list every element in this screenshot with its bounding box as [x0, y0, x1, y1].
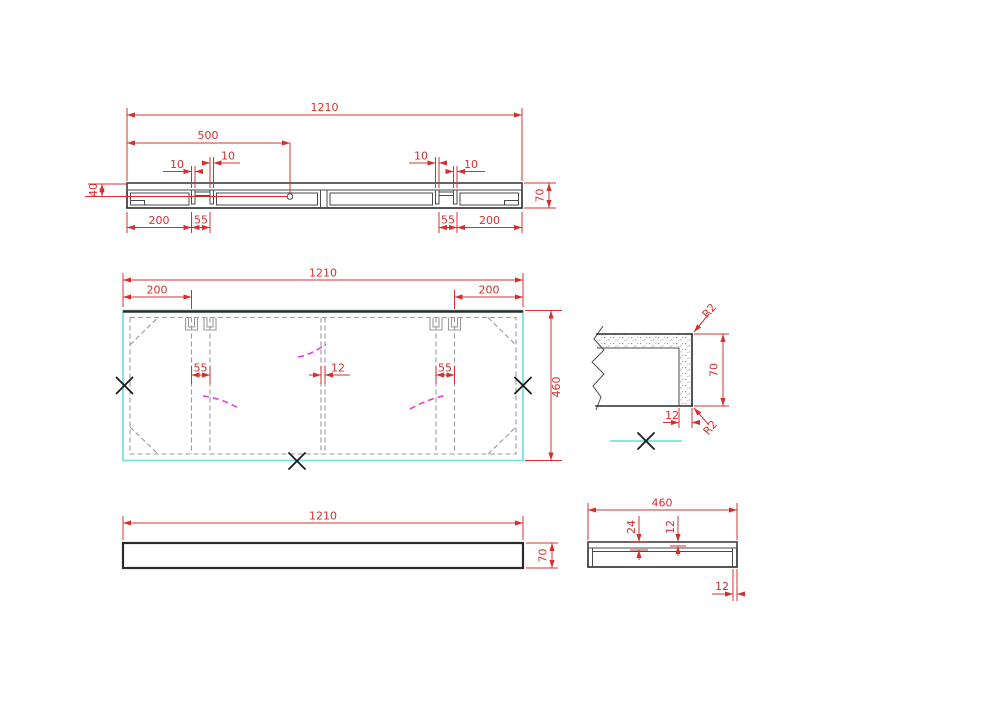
grain-arc — [203, 396, 240, 409]
dim-text: 10 — [170, 158, 184, 171]
dim-text: 55 — [194, 362, 208, 375]
grain-arc — [298, 344, 326, 357]
dim-front-height: 70 — [526, 543, 558, 568]
cavity-right — [460, 193, 519, 205]
dim-text: 460 — [550, 377, 563, 398]
slot-d — [454, 190, 458, 204]
dim-text: 40 — [87, 183, 100, 197]
dim-text: 1210 — [309, 267, 337, 280]
dim-section-hole-offset: 500 — [127, 129, 290, 194]
dim-text: 12 — [715, 580, 729, 593]
dim-plan-rib-left: 55 — [192, 362, 211, 385]
dim-side-skin: 12 — [664, 516, 686, 556]
dim-text: 200 — [479, 284, 500, 297]
cavity-left — [131, 193, 190, 205]
cavity-mid-left — [217, 193, 318, 205]
grain-arc — [410, 395, 447, 409]
dim-text: 55 — [194, 214, 208, 227]
side-skin-band — [588, 542, 737, 548]
dim-text: 10 — [221, 150, 235, 163]
plan-view: 1210 200 200 55 12 55 — [117, 267, 564, 470]
dim-text: 200 — [147, 284, 168, 297]
top-skin-band — [127, 183, 522, 190]
dim-text: 12 — [664, 520, 677, 534]
dim-text: 24 — [625, 520, 638, 534]
front-view: 1210 70 — [123, 510, 558, 569]
dim-text: 12 — [331, 362, 345, 375]
side-view: 460 24 12 12 — [588, 497, 745, 602]
corner-diagonal — [488, 318, 516, 346]
cad-canvas: 1210 500 10 10 10 — [0, 0, 1000, 707]
dim-side-recess: 24 — [625, 516, 648, 560]
dim-text: 55 — [438, 362, 452, 375]
corner-diagonal — [130, 427, 158, 454]
detail-view: R2 R2 70 12 — [592, 301, 729, 449]
dim-side-edge: 12 — [712, 569, 745, 601]
dim-text: 500 — [198, 129, 219, 142]
dim-text: 1210 — [311, 101, 339, 114]
dim-text: 12 — [665, 409, 679, 422]
dim-text: 10 — [464, 158, 478, 171]
dim-text: 10 — [414, 150, 428, 163]
dim-detail-height: 70 — [694, 334, 729, 406]
dim-text: 1210 — [309, 510, 337, 523]
dim-section-overall: 1210 — [127, 101, 522, 181]
dim-text: 70 — [708, 363, 721, 377]
dim-plan-end-left: 200 — [123, 284, 192, 310]
dim-text: 200 — [149, 214, 170, 227]
corner-diagonal — [130, 318, 158, 346]
technical-drawing: 1210 500 10 10 10 — [0, 0, 1000, 707]
dim-plan-depth: 460 — [525, 311, 563, 461]
dim-front-width: 1210 — [123, 510, 523, 541]
dim-plan-rib-center: 12 — [309, 362, 350, 385]
dim-side-width: 460 — [588, 497, 737, 541]
side-outline — [588, 542, 737, 567]
corner-diagonal — [488, 427, 516, 454]
radius-callout-top: R2 — [694, 301, 719, 332]
dim-text: 200 — [479, 214, 500, 227]
skin-band — [597, 334, 692, 406]
dim-detail-skin: 12 — [663, 408, 700, 428]
cavity-mid-right — [330, 193, 433, 205]
hole — [287, 194, 293, 200]
dim-text: 70 — [537, 549, 550, 563]
dim-text: 460 — [652, 497, 673, 510]
dim-section-height: 70 — [524, 183, 556, 208]
section-view: 1210 500 10 10 10 — [85, 101, 556, 233]
dim-plan-overall: 1210 — [123, 267, 523, 308]
hidden-outline — [130, 318, 516, 455]
dim-text: R2 — [700, 301, 719, 321]
dim-plan-rib-right: 55 — [436, 362, 455, 385]
slot-c — [436, 190, 440, 204]
front-outline — [123, 543, 523, 568]
dim-plan-end-right: 200 — [455, 284, 524, 310]
dim-text: R2 — [701, 418, 720, 438]
highlight-border — [123, 311, 523, 461]
dim-text: 55 — [441, 214, 455, 227]
dim-section-bottom: 200 55 55 200 — [127, 212, 522, 233]
dim-text: 70 — [534, 189, 547, 203]
